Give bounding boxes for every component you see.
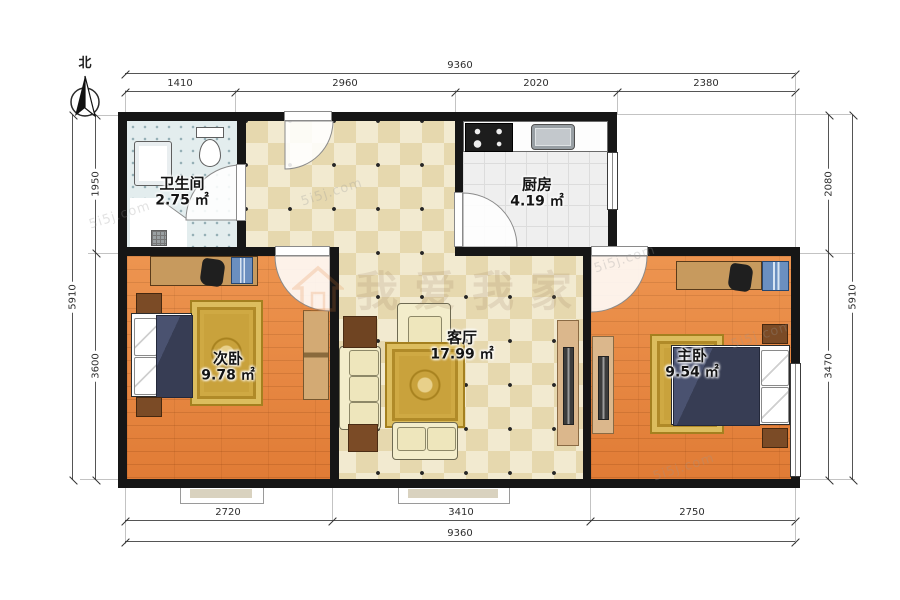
toilet-tank xyxy=(196,127,224,138)
witness-line xyxy=(795,72,796,247)
chair-bedroom2 xyxy=(199,258,226,288)
stove xyxy=(465,123,513,152)
witness-line xyxy=(332,488,333,522)
witness-line xyxy=(795,488,796,544)
bathroom-door-leaf xyxy=(236,164,246,221)
pillow xyxy=(761,350,789,386)
dim-top-seg4: 2380 xyxy=(690,78,721,89)
wall-bottom xyxy=(118,479,800,488)
dim-bottom-total: 9360 xyxy=(125,541,795,542)
witness-line xyxy=(125,488,126,544)
dim-bottom-seg2: 3410 xyxy=(445,507,476,518)
shower-drain xyxy=(151,230,167,246)
dim-right-total-value: 5910 xyxy=(848,281,859,312)
sofa-cushion xyxy=(349,350,379,376)
living-room-label: 客厅 17.99 ㎡ xyxy=(430,329,493,362)
wall-master-top-b xyxy=(648,247,800,256)
bathroom-area: 2.75 ㎡ xyxy=(155,193,208,209)
kitchen-name: 厨房 xyxy=(510,176,563,193)
bedroom2-area: 9.78 ㎡ xyxy=(201,368,254,384)
dim-left-seg2: 3600 xyxy=(91,350,102,381)
kitchen-label: 厨房 4.19 ㎡ xyxy=(510,176,563,209)
wall-bedroom2-top xyxy=(118,247,275,256)
dim-bottom-seg3: 2750 xyxy=(676,507,707,518)
witness-line xyxy=(88,253,118,254)
witness-line xyxy=(617,114,851,115)
tv-stand-bedroom1 xyxy=(592,336,614,434)
dim-right-segments: 2080 3470 xyxy=(828,115,829,480)
wall-bathroom-right-a xyxy=(237,112,246,164)
loveseat-cushion xyxy=(427,427,456,451)
tv-bedroom1 xyxy=(598,356,609,420)
dim-bottom-seg1: 2720 xyxy=(212,507,243,518)
loveseat-cushion xyxy=(397,427,426,451)
dim-right-seg2: 3470 xyxy=(824,350,835,381)
dim-top-total: 9360 xyxy=(125,73,795,74)
witness-line xyxy=(235,90,236,114)
blue-cabinet-bedroom2 xyxy=(231,257,253,284)
dim-top-seg3: 2020 xyxy=(520,78,551,89)
witness-line xyxy=(455,90,456,114)
wall-top-right xyxy=(332,112,617,121)
wall-kitchen-left xyxy=(455,112,463,192)
dim-right-seg1: 2080 xyxy=(824,168,835,199)
loveseat xyxy=(392,422,458,460)
dim-left-seg1: 1950 xyxy=(91,168,102,199)
entrance-door-leaf xyxy=(284,111,332,121)
living-room-name: 客厅 xyxy=(430,329,493,346)
bedroom1-area: 9.54 ㎡ xyxy=(665,365,718,381)
kitchen-area: 4.19 ㎡ xyxy=(510,194,563,210)
nightstand xyxy=(762,428,788,448)
tv-living xyxy=(563,347,574,425)
blanket xyxy=(156,315,193,398)
coffee-table xyxy=(348,424,378,452)
dim-top-seg1: 1410 xyxy=(164,78,195,89)
witness-line xyxy=(125,90,126,114)
dim-top-total-value: 9360 xyxy=(444,60,475,71)
dim-left-total: 5910 xyxy=(72,115,73,480)
dim-bottom-total-value: 9360 xyxy=(444,528,475,539)
wall-left xyxy=(118,112,127,488)
sofa-three-seat xyxy=(339,346,381,430)
bay-window-bedroom2-sill xyxy=(188,487,254,500)
kitchen-window xyxy=(607,152,618,210)
dim-top-segments: 1410 2960 2020 2380 xyxy=(125,91,795,92)
dim-left-segments: 1950 3600 xyxy=(95,115,96,480)
bay-window-living-sill xyxy=(406,487,500,500)
bedroom1-name: 主卧 xyxy=(665,347,718,364)
wardrobe-bedroom2 xyxy=(303,310,329,400)
wall-top-left xyxy=(118,112,284,121)
bedroom1-window xyxy=(790,363,801,477)
tv-stand-living xyxy=(557,320,579,446)
dim-right-total: 5910 xyxy=(852,115,853,480)
north-arrow-icon xyxy=(63,72,107,122)
blue-wardrobe-bedroom1 xyxy=(762,261,789,291)
toilet-bowl xyxy=(199,139,221,167)
wall-kitchen-right-a xyxy=(608,112,617,152)
dim-top-seg2: 2960 xyxy=(329,78,360,89)
pillow xyxy=(761,387,789,423)
witness-line xyxy=(590,488,591,522)
kitchen-door-leaf xyxy=(454,192,463,247)
sofa-cushion xyxy=(349,376,379,402)
nightstand xyxy=(762,324,788,344)
bed-bedroom2 xyxy=(131,313,192,397)
nightstand xyxy=(136,397,162,417)
nightstand xyxy=(136,293,162,314)
north-indicator: 北 xyxy=(62,52,108,126)
wall-bedroom2-right xyxy=(330,247,339,479)
bedroom2-door-leaf xyxy=(275,246,330,256)
floor-plan: 卫生间 2.75 ㎡ 厨房 4.19 ㎡ 客厅 17.99 ㎡ 次卧 9.78 … xyxy=(0,0,900,600)
dim-left-total-value: 5910 xyxy=(68,281,79,312)
chair-bedroom1 xyxy=(727,263,754,293)
dim-bottom-segments: 2720 3410 2750 xyxy=(125,520,795,521)
bathroom-name: 卫生间 xyxy=(155,175,208,192)
tv-cabinet xyxy=(343,316,377,348)
north-label: 北 xyxy=(62,52,108,71)
bedroom1-label: 主卧 9.54 ㎡ xyxy=(665,347,718,380)
witness-line xyxy=(617,90,618,114)
witness-line xyxy=(80,479,118,480)
pillow xyxy=(134,357,157,395)
living-room-area: 17.99 ㎡ xyxy=(430,347,493,363)
kitchen-sink xyxy=(531,124,575,150)
bedroom2-name: 次卧 xyxy=(201,350,254,367)
pillow xyxy=(134,318,157,356)
bedroom1-door-leaf xyxy=(591,246,648,256)
bathroom-label: 卫生间 2.75 ㎡ xyxy=(155,175,208,208)
bedroom2-label: 次卧 9.78 ㎡ xyxy=(201,350,254,383)
wall-master-left xyxy=(583,256,591,479)
